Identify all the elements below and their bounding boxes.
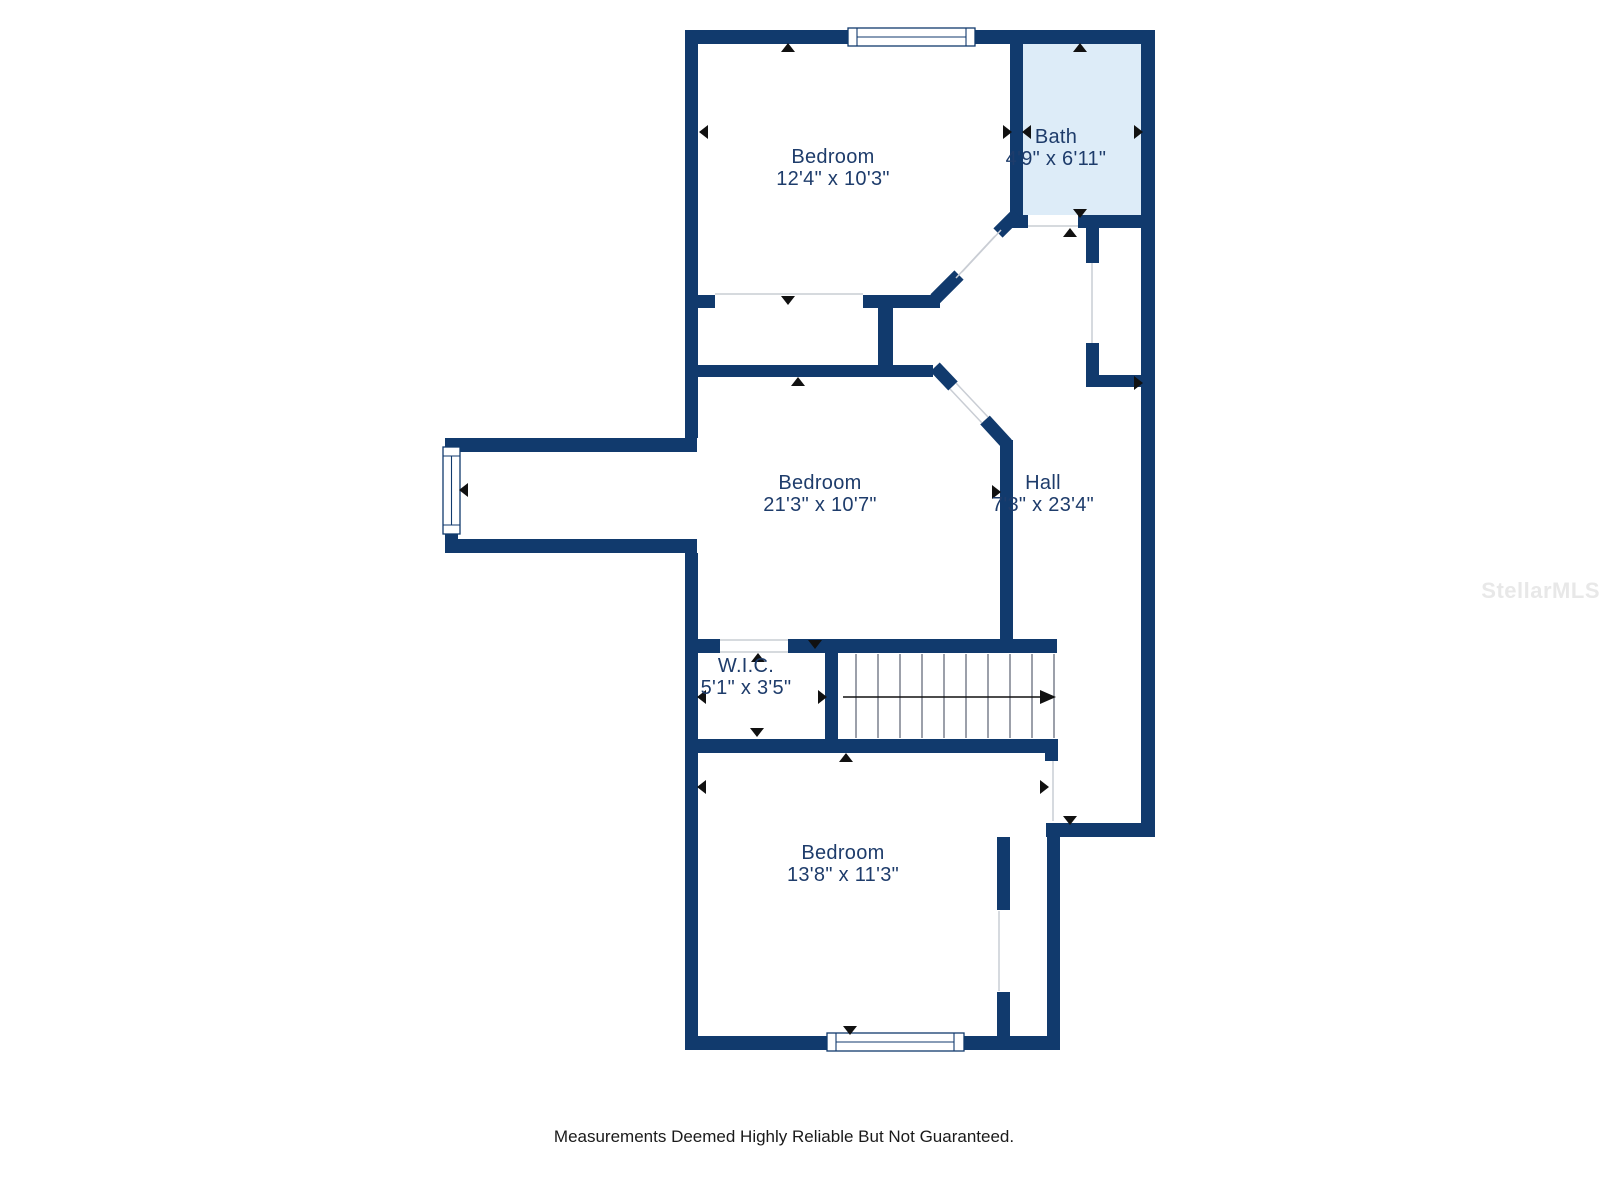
disclaimer-text: Measurements Deemed Highly Reliable But … [0, 1127, 1568, 1147]
window-top [848, 28, 975, 46]
room-label-bedroom-middle: Bedroom 21'3" x 10'7" [720, 472, 920, 516]
room-dims: 7'3" x 23'4" [943, 494, 1143, 516]
room-dims: 13'8" x 11'3" [743, 864, 943, 886]
room-label-bedroom-top: Bedroom 12'4" x 10'3" [733, 146, 933, 190]
room-name: Bedroom [743, 842, 943, 864]
floor-plan: Bedroom 12'4" x 10'3" Bath 4'9" x 6'11" … [0, 0, 1600, 1200]
room-name: W.I.C. [646, 655, 846, 677]
staircase [843, 654, 1056, 738]
room-dims: 21'3" x 10'7" [720, 494, 920, 516]
room-dims: 12'4" x 10'3" [733, 168, 933, 190]
room-label-bedroom-bottom: Bedroom 13'8" x 11'3" [743, 842, 943, 886]
window-left [443, 447, 460, 534]
room-name: Bedroom [733, 146, 933, 168]
room-name: Bedroom [720, 472, 920, 494]
stellar-mls-watermark: StellarMLS [1481, 578, 1600, 604]
room-dims: 5'1" x 3'5" [646, 677, 846, 699]
room-dims: 4'9" x 6'11" [956, 148, 1156, 170]
room-label-wic: W.I.C. 5'1" x 3'5" [646, 655, 846, 699]
room-name: Bath [956, 126, 1156, 148]
room-label-bath: Bath 4'9" x 6'11" [956, 126, 1156, 170]
window-bottom [827, 1033, 964, 1051]
stair-direction-arrow [843, 690, 1056, 704]
room-label-hall: Hall 7'3" x 23'4" [943, 472, 1143, 516]
room-name: Hall [943, 472, 1143, 494]
